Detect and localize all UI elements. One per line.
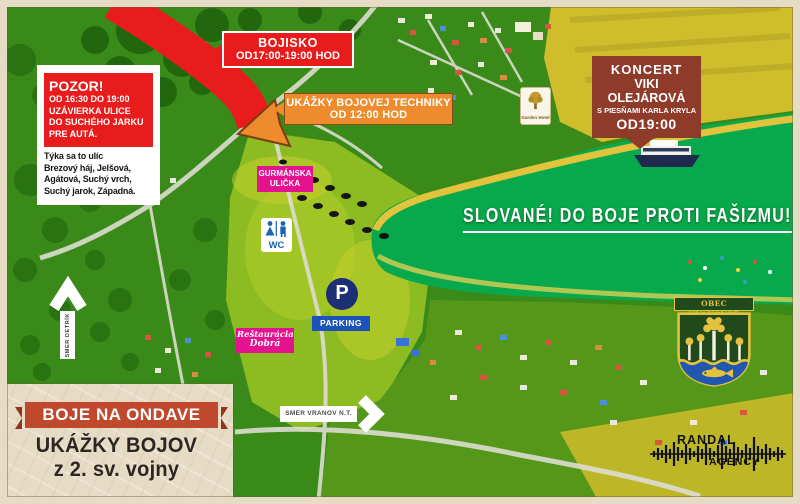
pointer-left-icon bbox=[211, 44, 222, 60]
tech-demo-label: UKÁŽKY BOJOVEJ TECHNIKY OD 12:00 HOD bbox=[284, 93, 453, 125]
banner-title-line2: z 2. sv. vojny bbox=[6, 458, 227, 482]
event-banner: BOJE NA ONDAVE UKÁŽKY BOJOV z 2. sv. voj… bbox=[0, 384, 233, 504]
obec-kvakovce-crest: OBEC KVAKOVCE bbox=[674, 297, 754, 388]
concert-label: KONCERT VIKI OLEJÁROVÁ S PIESŇAMI KARLA … bbox=[592, 56, 701, 138]
tree-icon bbox=[521, 90, 550, 111]
pointer-left-icon bbox=[273, 102, 284, 116]
road-closure-alert: POZOR! OD 16:30 DO 19:00 UZÁVIERKA ULICE… bbox=[44, 73, 153, 147]
smer-vranov-label: SMER VRANOV N.T. bbox=[280, 406, 357, 422]
alert-title: POZOR! bbox=[49, 78, 149, 94]
randal-agency-logo: RANDAL AGENCY bbox=[648, 431, 788, 475]
alert-schedule: OD 16:30 DO 19:00 bbox=[49, 94, 149, 106]
banner-ribbon: BOJE NA ONDAVE bbox=[25, 402, 218, 428]
pointer-down-icon bbox=[626, 138, 654, 149]
garden-hotel-label: Garden Hotel bbox=[521, 116, 550, 121]
garden-hotel-badge: Garden Hotel bbox=[520, 87, 551, 125]
event-map-poster: POZOR! OD 16:30 DO 19:00 UZÁVIERKA ULICE… bbox=[0, 0, 800, 504]
crest-title: OBEC KVAKOVCE bbox=[674, 297, 754, 311]
smer-detrik-label: SMER DETRÍK bbox=[60, 311, 75, 359]
restaurant-label: Reštaurácia Dobrá bbox=[236, 328, 294, 353]
wc-icon: WC bbox=[261, 218, 292, 252]
banner-title-line1: UKÁŽKY BOJOV bbox=[6, 434, 227, 458]
slogan-text: SLOVANÉ! DO BOJE PROTI FAŠIZMU! bbox=[463, 205, 791, 233]
alert-street-list: Týka sa to ulíc Brezový háj, Jelšová, Ag… bbox=[44, 151, 153, 198]
food-street-label: GURMÁNSKA ULIČKA bbox=[257, 166, 313, 192]
road-closure-alert-card: POZOR! OD 16:30 DO 19:00 UZÁVIERKA ULICE… bbox=[37, 65, 160, 205]
agency-name: RANDAL bbox=[677, 433, 736, 447]
parking-icon: P bbox=[326, 278, 358, 310]
svg-text:WC: WC bbox=[269, 240, 285, 251]
crest-shield-icon bbox=[675, 312, 753, 388]
battlefield-label: BOJISKO OD17:00-19:00 HOD bbox=[222, 31, 354, 68]
parking-label: PARKING bbox=[312, 316, 370, 331]
agency-suffix: AGENCY bbox=[709, 456, 760, 468]
